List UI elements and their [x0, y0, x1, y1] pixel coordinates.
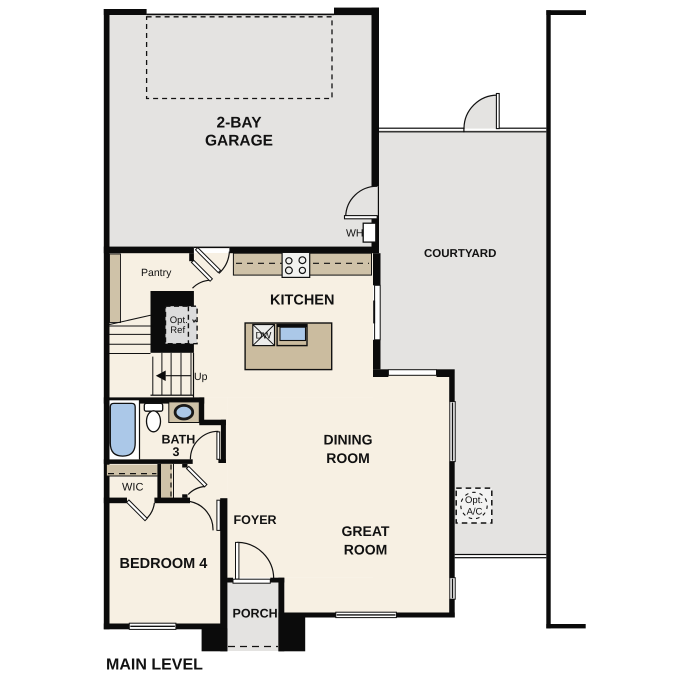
svg-text:2-BAY: 2-BAY — [216, 115, 262, 132]
svg-text:3: 3 — [173, 445, 180, 459]
svg-text:DINING: DINING — [324, 432, 373, 448]
svg-text:Pantry: Pantry — [141, 267, 172, 279]
svg-text:PORCH: PORCH — [233, 607, 278, 621]
svg-text:Opt.: Opt. — [465, 495, 483, 506]
svg-text:MAIN LEVEL: MAIN LEVEL — [106, 657, 203, 674]
svg-text:GARAGE: GARAGE — [205, 133, 273, 150]
svg-text:Up: Up — [194, 371, 208, 383]
svg-text:ROOM: ROOM — [344, 542, 388, 558]
svg-text:BEDROOM 4: BEDROOM 4 — [120, 556, 208, 572]
svg-text:DW: DW — [256, 331, 272, 342]
svg-text:Ref: Ref — [170, 325, 185, 336]
svg-text:WIC: WIC — [122, 482, 143, 494]
svg-text:GREAT: GREAT — [342, 523, 390, 539]
svg-text:ROOM: ROOM — [326, 450, 370, 466]
svg-text:WH: WH — [346, 228, 364, 240]
svg-text:COURTYARD: COURTYARD — [424, 248, 496, 260]
svg-text:A/C: A/C — [467, 506, 483, 517]
svg-text:FOYER: FOYER — [234, 513, 277, 527]
svg-text:KITCHEN: KITCHEN — [270, 293, 334, 309]
